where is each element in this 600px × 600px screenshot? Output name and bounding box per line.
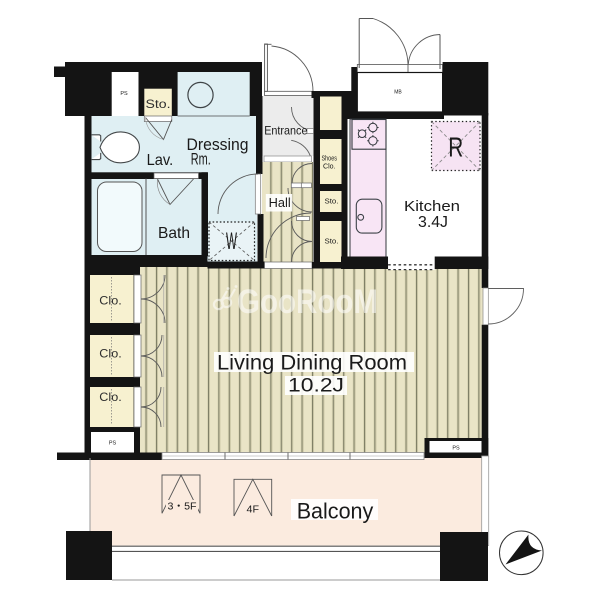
svg-text:Clo.: Clo. (99, 390, 121, 404)
svg-text:3.4J: 3.4J (418, 214, 448, 231)
svg-text:R: R (448, 132, 463, 163)
svg-text:Rm.: Rm. (191, 150, 211, 169)
svg-text:Clo.: Clo. (99, 294, 121, 308)
svg-text:Balcony: Balcony (297, 499, 374, 524)
svg-text:3・5F: 3・5F (168, 502, 197, 513)
svg-text:Sto.: Sto. (146, 97, 171, 111)
svg-text:PS: PS (109, 441, 117, 447)
svg-text:Lav.: Lav. (147, 152, 174, 169)
svg-text:PS: PS (120, 91, 128, 97)
svg-text:4F: 4F (247, 505, 260, 516)
svg-text:GooRooM: GooRooM (237, 283, 378, 321)
svg-text:Clo.: Clo. (99, 347, 121, 361)
svg-text:Clo.: Clo. (323, 162, 336, 171)
svg-text:Bath: Bath (158, 225, 190, 242)
svg-text:Kitchen: Kitchen (404, 198, 460, 215)
svg-text:Living Dining Room: Living Dining Room (217, 351, 407, 375)
svg-text:Entrance: Entrance (264, 124, 308, 138)
svg-text:10.2J: 10.2J (288, 375, 344, 396)
svg-text:W: W (226, 228, 237, 255)
svg-text:MB: MB (394, 90, 402, 96)
svg-text:Sto.: Sto. (325, 197, 339, 206)
svg-text:Sto.: Sto. (325, 237, 339, 246)
svg-text:Hall: Hall (269, 196, 291, 210)
svg-text:PS: PS (452, 446, 460, 452)
